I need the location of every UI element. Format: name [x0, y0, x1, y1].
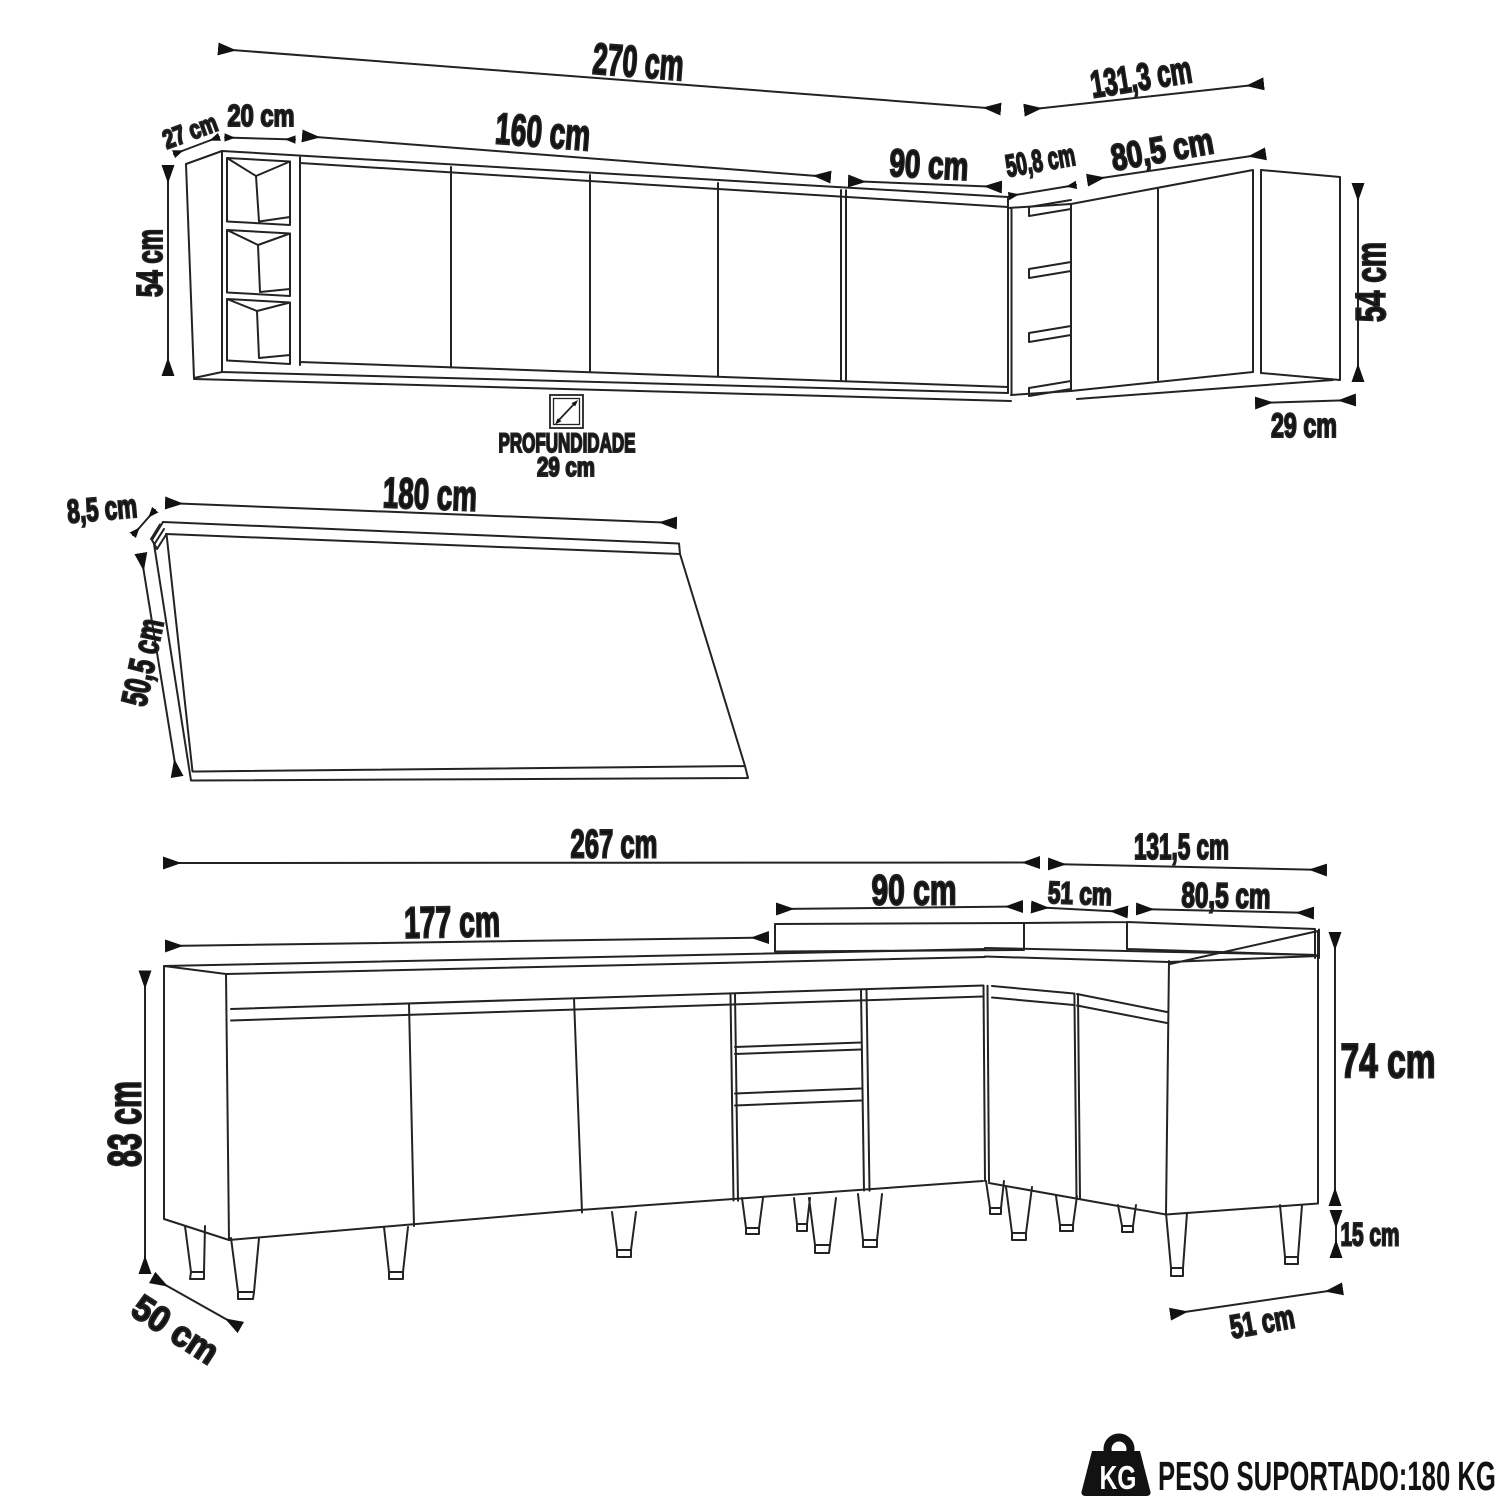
- svg-text:29 cm: 29 cm: [537, 452, 595, 482]
- svg-text:KG: KG: [1100, 1461, 1137, 1497]
- svg-text:15 cm: 15 cm: [1340, 1217, 1399, 1253]
- svg-text:74 cm: 74 cm: [1341, 1035, 1436, 1088]
- svg-text:29 cm: 29 cm: [1271, 408, 1337, 445]
- svg-text:50,8 cm: 50,8 cm: [1003, 139, 1078, 184]
- svg-text:51 cm: 51 cm: [1047, 874, 1112, 912]
- svg-text:PESO SUPORTADO:180 KG: PESO SUPORTADO:180 KG: [1158, 1454, 1496, 1500]
- svg-text:90 cm: 90 cm: [872, 865, 957, 914]
- svg-text:160 cm: 160 cm: [494, 104, 593, 160]
- svg-text:180 cm: 180 cm: [382, 468, 478, 520]
- svg-text:131,3 cm: 131,3 cm: [1087, 48, 1194, 106]
- svg-text:131,5 cm: 131,5 cm: [1134, 828, 1229, 868]
- svg-text:8,5 cm: 8,5 cm: [66, 487, 139, 530]
- svg-text:80,5 cm: 80,5 cm: [1108, 120, 1217, 179]
- svg-text:83 cm: 83 cm: [100, 1081, 151, 1167]
- svg-text:270 cm: 270 cm: [591, 34, 685, 90]
- svg-text:54 cm: 54 cm: [130, 229, 170, 297]
- svg-text:267 cm: 267 cm: [571, 823, 658, 867]
- svg-text:51 cm: 51 cm: [1227, 1299, 1297, 1347]
- svg-text:90 cm: 90 cm: [888, 141, 969, 189]
- svg-text:177 cm: 177 cm: [404, 897, 501, 947]
- svg-text:80,5 cm: 80,5 cm: [1181, 877, 1271, 917]
- svg-text:20 cm: 20 cm: [228, 98, 295, 133]
- svg-text:50 cm: 50 cm: [125, 1288, 226, 1373]
- svg-text:54 cm: 54 cm: [1347, 242, 1394, 322]
